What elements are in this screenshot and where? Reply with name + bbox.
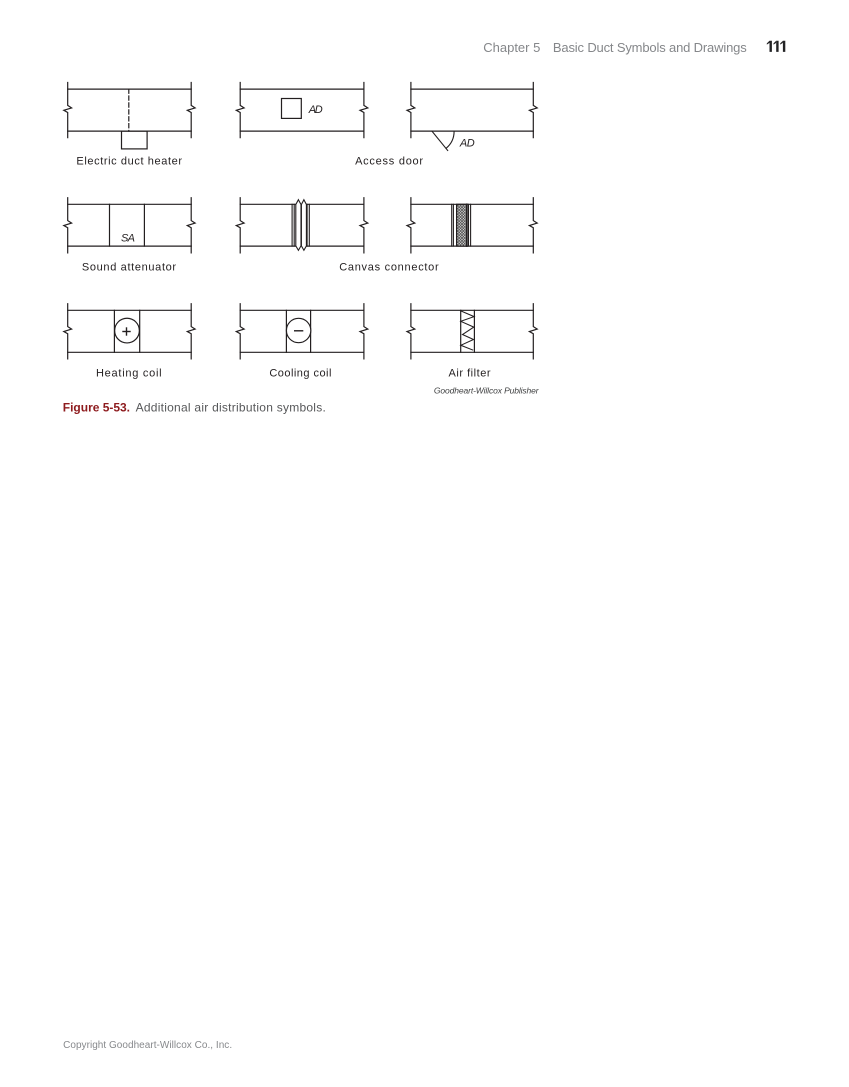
svg-text:Goodheart-Willcox Publisher: Goodheart-Willcox Publisher xyxy=(434,386,540,396)
svg-text:AD: AD xyxy=(459,137,475,149)
svg-text:AD: AD xyxy=(308,104,323,116)
svg-text:Basic Duct Symbols and Drawing: Basic Duct Symbols and Drawings xyxy=(553,40,747,55)
svg-text:Heating coil: Heating coil xyxy=(96,368,162,380)
svg-text:Access door: Access door xyxy=(355,156,423,168)
svg-text:SA: SA xyxy=(121,233,135,245)
svg-text:Electric duct heater: Electric duct heater xyxy=(76,156,182,168)
svg-text:Cooling coil: Cooling coil xyxy=(269,368,331,380)
svg-text:Copyright Goodheart-Willcox Co: Copyright Goodheart-Willcox Co., Inc. xyxy=(63,1040,232,1051)
svg-text:Chapter 5: Chapter 5 xyxy=(483,40,540,55)
svg-text:Figure 5-53.: Figure 5-53. xyxy=(63,400,130,414)
svg-text:Sound attenuator: Sound attenuator xyxy=(82,261,177,273)
svg-text:Canvas connector: Canvas connector xyxy=(339,261,439,273)
svg-text:Additional air distribution sy: Additional air distribution symbols. xyxy=(136,400,326,414)
svg-text:Air filter: Air filter xyxy=(449,368,491,380)
